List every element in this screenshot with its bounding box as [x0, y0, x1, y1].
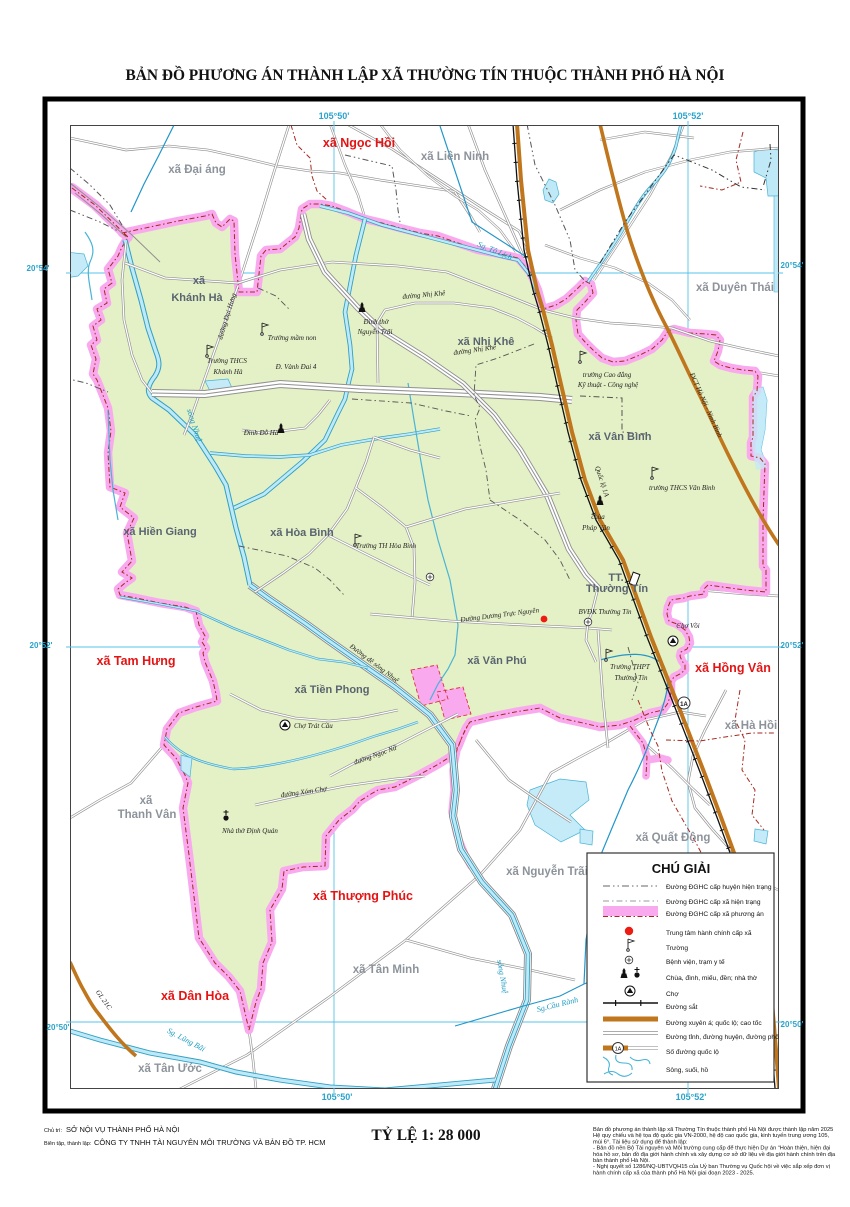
svg-text:Đường ĐGHC cấp huyện hiện trạn: Đường ĐGHC cấp huyện hiện trạng	[666, 882, 772, 891]
svg-text:múi 6°. Tài liệu sử dụng để th: múi 6°. Tài liệu sử dụng để thành lập:	[593, 1138, 688, 1145]
svg-text:xã Tân Ước: xã Tân Ước	[138, 1063, 202, 1075]
svg-text:Chợ: Chợ	[666, 991, 679, 998]
svg-text:Đường tỉnh, đường huyện, đường: Đường tỉnh, đường huyện, đường phố	[666, 1032, 779, 1041]
svg-text:chùa: chùa	[591, 513, 605, 521]
svg-text:Đình Đỗ Hà: Đình Đỗ Hà	[243, 429, 279, 437]
svg-text:xã Liên Ninh: xã Liên Ninh	[421, 151, 489, 163]
svg-text:xã Hiền Giang: xã Hiền Giang	[123, 526, 196, 538]
svg-text:xã Tiền Phong: xã Tiền Phong	[295, 684, 370, 696]
svg-text:Pháp Vân: Pháp Vân	[581, 524, 610, 532]
svg-text:Khánh Hà: Khánh Hà	[171, 292, 223, 304]
svg-text:Số đường quốc lộ: Số đường quốc lộ	[666, 1047, 719, 1056]
svg-text:TỶ LỆ 1: 28 000: TỶ LỆ 1: 28 000	[371, 1127, 481, 1144]
svg-text:Bản đồ phương án thành lập xã: Bản đồ phương án thành lập xã Thường Tín…	[593, 1127, 833, 1133]
svg-text:Nguyễn Trãi: Nguyễn Trãi	[357, 328, 393, 336]
svg-text:20°54': 20°54'	[781, 261, 804, 270]
svg-text:BẢN ĐỒ PHƯƠNG ÁN THÀNH LẬP XÃ: BẢN ĐỒ PHƯƠNG ÁN THÀNH LẬP XÃ THƯỜNG TÍN…	[125, 66, 724, 84]
svg-text:SỞ NỘI VỤ THÀNH PHỐ HÀ NỘI: SỞ NỘI VỤ THÀNH PHỐ HÀ NỘI	[66, 1124, 179, 1134]
svg-text:trường Cao đẳng: trường Cao đẳng	[583, 371, 632, 379]
svg-text:Chợ Vồi: Chợ Vồi	[676, 622, 699, 630]
svg-text:1A: 1A	[680, 702, 688, 708]
svg-text:Thanh Vân: Thanh Vân	[118, 809, 177, 821]
svg-text:Khánh Hà: Khánh Hà	[213, 368, 243, 376]
svg-text:BVĐK Thường Tín: BVĐK Thường Tín	[578, 608, 632, 616]
svg-text:CHÚ GIẢI: CHÚ GIẢI	[652, 861, 711, 876]
svg-text:xã Hòa Bình: xã Hòa Bình	[270, 527, 334, 539]
svg-text:xã Hà Hồi: xã Hà Hồi	[725, 720, 777, 732]
svg-text:xã Hồng Vân: xã Hồng Vân	[695, 661, 771, 675]
svg-text:trường THCS Vân Bình: trường THCS Vân Bình	[649, 484, 716, 492]
svg-text:1A: 1A	[615, 1047, 622, 1053]
svg-text:105°50': 105°50'	[319, 111, 350, 121]
svg-text:20°52': 20°52'	[30, 641, 53, 650]
svg-text:xã: xã	[193, 275, 206, 287]
svg-text:xã: xã	[140, 795, 153, 807]
svg-text:hóa hồ sơ, bản đồ địa giới hàn: hóa hồ sơ, bản đồ địa giới hành chính và…	[593, 1151, 836, 1158]
svg-text:Trường THPT: Trường THPT	[610, 663, 651, 671]
svg-text:hành chính cấp xã của thành ph: hành chính cấp xã của thành phố Hà Nội g…	[593, 1169, 755, 1176]
svg-text:xã Tam Hưng: xã Tam Hưng	[97, 654, 176, 668]
svg-text:Trường mầm non: Trường mầm non	[268, 334, 317, 342]
svg-text:xã Duyên Thái: xã Duyên Thái	[696, 282, 774, 294]
svg-text:- Bản đồ nền Bộ Tài nguyên và: - Bản đồ nền Bộ Tài nguyên và Môi trường…	[593, 1145, 830, 1152]
svg-text:- Nghị quyết số 1286/NQ-UBTVQH: - Nghị quyết số 1286/NQ-UBTVQH15 của Uỷ …	[593, 1163, 830, 1170]
svg-text:105°52': 105°52'	[673, 111, 704, 121]
svg-text:20°54': 20°54'	[27, 264, 50, 273]
svg-text:Chủ trì:: Chủ trì:	[44, 1127, 63, 1134]
svg-text:Kỹ thuật - Công nghệ: Kỹ thuật - Công nghệ	[577, 381, 639, 389]
svg-text:20°50': 20°50'	[47, 1023, 70, 1032]
svg-text:Hệ quy chiếu và hệ tọa độ quốc: Hệ quy chiếu và hệ tọa độ quốc gia VN-20…	[593, 1133, 830, 1139]
svg-text:bàn thành phố Hà Nội.: bàn thành phố Hà Nội.	[593, 1158, 650, 1164]
svg-text:Biên tập, thành lập:: Biên tập, thành lập:	[44, 1141, 92, 1147]
svg-text:Đ. Vành Đai 4: Đ. Vành Đai 4	[275, 363, 317, 371]
svg-text:xã Đại áng: xã Đại áng	[168, 164, 226, 176]
svg-text:Thường Tín: Thường Tín	[586, 583, 648, 595]
svg-text:Đường xuyên á; quốc lộ; cao tố: Đường xuyên á; quốc lộ; cao tốc	[666, 1018, 762, 1027]
svg-text:xã Vân Bình: xã Vân Bình	[589, 431, 652, 443]
svg-text:20°52': 20°52'	[781, 641, 804, 650]
svg-text:xã Ngọc Hồi: xã Ngọc Hồi	[323, 136, 395, 150]
svg-text:Sông, suối, hồ: Sông, suối, hồ	[666, 1065, 708, 1074]
svg-text:105°52': 105°52'	[676, 1092, 707, 1102]
svg-text:20°50': 20°50'	[781, 1020, 804, 1029]
svg-text:Thường Tín: Thường Tín	[614, 674, 648, 682]
svg-text:Đường ĐGHC cấp xã hiện trạng: Đường ĐGHC cấp xã hiện trạng	[666, 897, 761, 906]
svg-text:Chợ Trát Cầu: Chợ Trát Cầu	[294, 722, 333, 730]
svg-text:Trường: Trường	[666, 945, 688, 952]
svg-text:xã Quất Động: xã Quất Động	[636, 832, 711, 844]
svg-text:Trường TH Hòa Bình: Trường TH Hòa Bình	[356, 542, 417, 550]
svg-text:xã Nguyễn Trãi: xã Nguyễn Trãi	[506, 865, 588, 878]
svg-text:xã Dân Hòa: xã Dân Hòa	[161, 989, 230, 1003]
svg-text:xã Thượng Phúc: xã Thượng Phúc	[313, 889, 413, 903]
svg-text:Nhà thờ Định Quán: Nhà thờ Định Quán	[221, 827, 278, 835]
svg-text:Trung tâm hành chính cấp xã: Trung tâm hành chính cấp xã	[666, 928, 752, 937]
svg-text:xã Văn Phú: xã Văn Phú	[467, 655, 526, 667]
svg-text:Đường sắt: Đường sắt	[666, 1002, 698, 1011]
svg-text:xã Tân Minh: xã Tân Minh	[353, 964, 419, 976]
svg-text:CÔNG TY TNHH TÀI NGUYÊN MÔI TR: CÔNG TY TNHH TÀI NGUYÊN MÔI TRƯỜNG VÀ BẢ…	[94, 1137, 325, 1147]
svg-text:Đình thờ: Đình thờ	[363, 318, 390, 326]
svg-text:Trường THCS: Trường THCS	[207, 357, 247, 365]
svg-text:105°50': 105°50'	[322, 1092, 353, 1102]
svg-text:Đường ĐGHC cấp xã phương án: Đường ĐGHC cấp xã phương án	[666, 909, 764, 918]
svg-text:Bệnh viện, trạm y tế: Bệnh viện, trạm y tế	[666, 957, 725, 966]
svg-text:Chùa, đình, miếu, đền; nhà thờ: Chùa, đình, miếu, đền; nhà thờ	[666, 973, 758, 982]
